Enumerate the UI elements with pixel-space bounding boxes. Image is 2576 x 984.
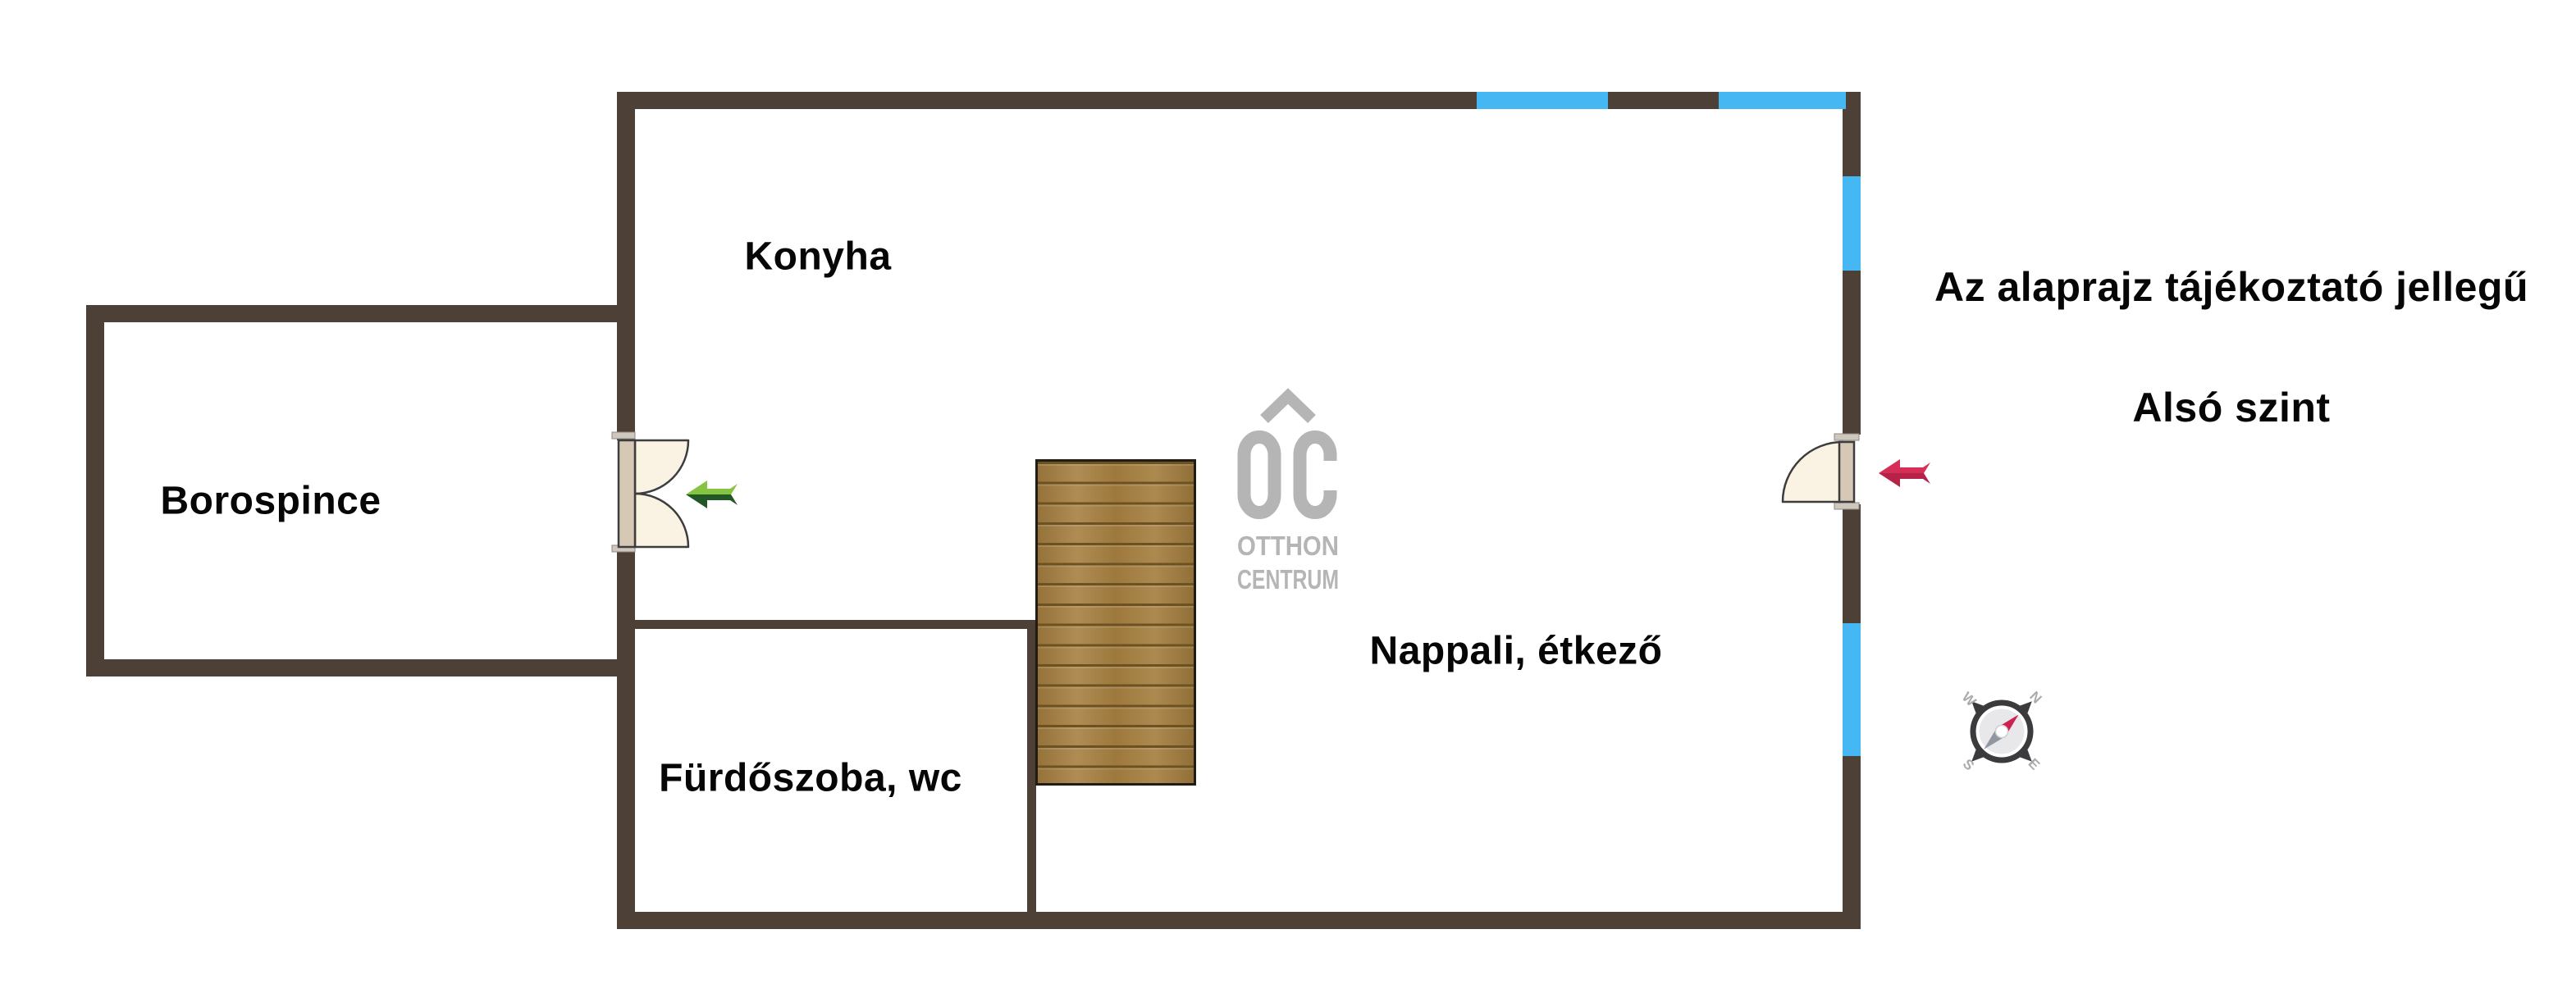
window-top-1 bbox=[1477, 92, 1608, 109]
room-label-konyha: Konyha bbox=[744, 235, 891, 280]
door-swing-arc bbox=[635, 440, 688, 494]
door-hinge-bracket bbox=[1834, 503, 1859, 509]
entry-door bbox=[1772, 426, 1862, 517]
wall-annex-bottom bbox=[104, 659, 617, 676]
wall-top-mid-segment bbox=[1608, 92, 1719, 109]
wall-right-s2 bbox=[1843, 271, 1861, 435]
room-label-nappali: Nappali, étkező bbox=[1370, 629, 1663, 674]
floorplan-canvas: N E S W OTTHON CENTRUM Konyha Borospince… bbox=[0, 0, 2576, 984]
logo-letter-o bbox=[1245, 437, 1275, 512]
door-hinge-bracket bbox=[1834, 434, 1859, 440]
wall-right-s1 bbox=[1843, 109, 1861, 176]
logo-line1: OTTHON bbox=[1237, 531, 1339, 561]
otthon-centrum-logo: OTTHON CENTRUM bbox=[1226, 381, 1350, 603]
window-right-2 bbox=[1843, 623, 1861, 756]
disclaimer-text: Az alaprajz tájékoztató jellegű bbox=[1934, 263, 2528, 311]
window-right-1 bbox=[1843, 176, 1861, 271]
level-text: Alsó szint bbox=[2132, 384, 2330, 431]
wall-bathroom-top bbox=[635, 620, 1036, 629]
wall-right-s3 bbox=[1843, 504, 1861, 623]
wall-left-upper bbox=[617, 109, 635, 440]
door-swing-arc bbox=[635, 494, 688, 547]
wall-left-lower bbox=[617, 547, 635, 912]
cellar-direction-arrow-icon bbox=[686, 479, 738, 510]
room-label-borospince: Borospince bbox=[160, 479, 381, 524]
wall-top-corner bbox=[1846, 92, 1861, 109]
room-label-furdoszoba: Fürdőszoba, wc bbox=[659, 756, 962, 801]
wall-right-s4 bbox=[1843, 756, 1861, 912]
wall-bottom bbox=[617, 912, 1861, 929]
staircase bbox=[1035, 459, 1196, 786]
logo-line2: CENTRUM bbox=[1237, 564, 1339, 594]
door-leaf bbox=[619, 440, 635, 547]
door-swing-arc bbox=[1783, 442, 1843, 502]
door-leaf bbox=[1839, 442, 1854, 502]
door-hinge-bracket bbox=[612, 432, 635, 439]
wall-annex-top bbox=[104, 305, 617, 322]
entrance-direction-arrow-icon bbox=[1879, 458, 1931, 489]
wall-top-left-segment bbox=[617, 92, 1477, 109]
compass-icon: N E S W bbox=[1948, 678, 2055, 785]
wall-annex-left bbox=[86, 305, 104, 676]
window-top-2 bbox=[1719, 92, 1846, 109]
logo-roof-icon bbox=[1264, 396, 1312, 419]
